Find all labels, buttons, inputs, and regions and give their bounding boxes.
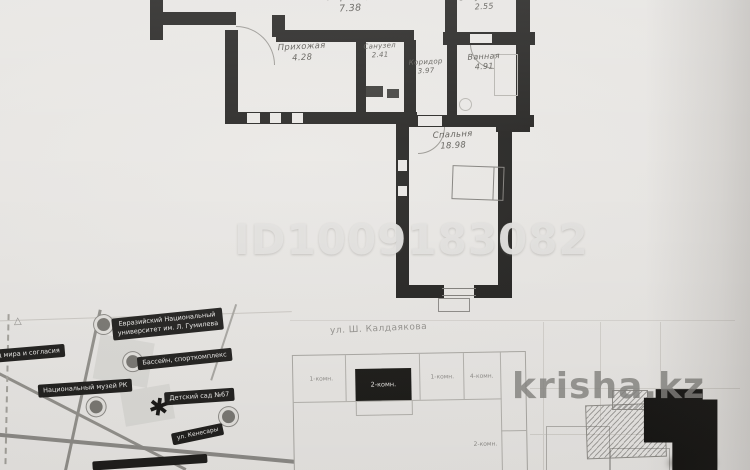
map-label-street: ул. Кенесары: [171, 423, 225, 446]
sink-outline: [459, 98, 472, 111]
map-label-kindergarten: Детский сад №67: [164, 388, 235, 405]
bathroom-fixture: [366, 86, 383, 97]
map-poi-icon: [86, 397, 106, 417]
room-label-sanuzel2: Сануз. 2-ой 2.55: [448, 0, 521, 15]
map-label-palace: Дворец мира и согласия: [0, 344, 65, 365]
door-gap: [247, 113, 260, 123]
window: [442, 288, 476, 296]
bed-outline: [451, 165, 504, 201]
listing-photo-floorplan: Коридор 7.38 Сануз. 2-ой 2.55 Прихожая 4…: [0, 0, 750, 470]
map-railway-dashed-line: [4, 314, 9, 464]
listing-id-watermark: ID1009183082: [234, 215, 589, 264]
krisha-kz-watermark: krisha.kz: [512, 366, 705, 407]
unit-divider: [412, 400, 413, 414]
photo-content: Коридор 7.38 Сануз. 2-ой 2.55 Прихожая 4…: [0, 0, 750, 470]
door-gap: [418, 116, 442, 126]
door-gap: [270, 113, 281, 123]
map-poi-icon: [94, 315, 114, 335]
wall-segment: [396, 285, 444, 298]
location-marker-icon: ✱: [147, 392, 171, 423]
room-label-spalnya: Спальня 18.98: [413, 128, 492, 154]
room-label-prihozhaya: Прихожая 4.28: [261, 40, 342, 66]
unit-divider: [501, 430, 526, 431]
wall-notch: [398, 160, 407, 171]
wall-segment: [396, 118, 409, 298]
room-label-koridor-top: Коридор 7.38: [304, 0, 395, 18]
wall-segment: [474, 285, 512, 298]
map-label-university: Евразийский Национальный университет им.…: [111, 308, 224, 341]
wall-segment: [276, 30, 414, 42]
wall-segment: [150, 12, 236, 25]
wall-segment: [498, 120, 512, 298]
room-label-sanuzel: Санузел 2.41: [356, 41, 405, 62]
unit-label: 1-комн.: [423, 373, 461, 381]
highlighted-unit-label: 2-комн.: [355, 368, 412, 401]
section-divider-line: [290, 320, 735, 321]
unit-divider: [500, 352, 503, 470]
wall-segment: [404, 40, 416, 122]
unit-label: 1-комн.: [299, 375, 343, 383]
building-floor-plan: 1-комн. 2-комн. 1-комн. 4-комн. 2-комн.: [292, 351, 528, 470]
tree-icon: △: [14, 316, 22, 327]
street-name-label: ул. Ш. Калдаякова: [330, 322, 428, 336]
unit-divider: [345, 355, 347, 401]
balcony-outline: [438, 298, 470, 312]
map-label-pill-partial: [92, 454, 207, 470]
door-gap: [470, 34, 492, 43]
bed-pillow-line: [492, 168, 494, 200]
bathroom-fixture: [387, 89, 399, 98]
room-label-vannaya: Ванная 4.91: [452, 50, 517, 74]
door-gap: [292, 113, 303, 123]
wall-segment: [516, 0, 530, 122]
wall-segment: [225, 30, 238, 124]
wall-notch: [398, 186, 407, 196]
room-label-koridor-small: Коридор 3.97: [404, 57, 449, 77]
unit-label: 4-комн.: [465, 372, 498, 380]
unit-divider: [419, 354, 421, 400]
site-map: △ △ ✱ Евразийский Национальный университ…: [0, 305, 296, 470]
unit-label: 2-комн.: [470, 440, 500, 448]
unit-divider: [356, 414, 413, 416]
map-label-museum: Национальный музей РК: [38, 379, 133, 398]
unit-divider: [356, 401, 357, 415]
